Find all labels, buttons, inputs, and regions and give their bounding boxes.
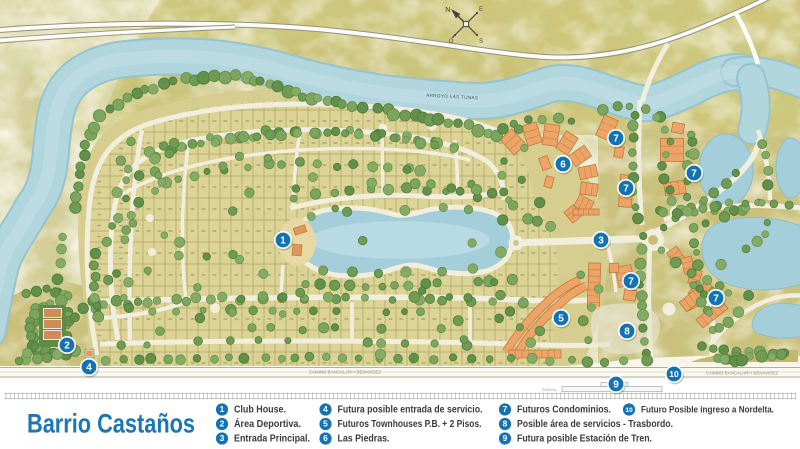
svg-text:3: 3 bbox=[598, 236, 604, 247]
svg-text:7: 7 bbox=[713, 294, 719, 305]
svg-text:Las Piedras.: Las Piedras. bbox=[338, 434, 390, 445]
svg-text:Futura posible entrada de serv: Futura posible entrada de servicio. bbox=[338, 405, 483, 416]
svg-text:Entrada Principal.: Entrada Principal. bbox=[234, 434, 310, 445]
svg-text:8: 8 bbox=[503, 419, 508, 429]
svg-text:S: S bbox=[479, 39, 483, 45]
svg-text:5: 5 bbox=[323, 419, 328, 429]
svg-text:3: 3 bbox=[220, 433, 225, 443]
svg-text:Futuros Townhouses P.B. + 2 Pi: Futuros Townhouses P.B. + 2 Pisos. bbox=[338, 419, 482, 430]
svg-text:7: 7 bbox=[628, 277, 634, 288]
svg-text:6: 6 bbox=[323, 433, 328, 443]
svg-text:Barrio Castaños: Barrio Castaños bbox=[27, 409, 195, 439]
svg-text:4: 4 bbox=[323, 404, 328, 414]
svg-text:Posible área de servicios - Tr: Posible área de servicios - Trasbordo. bbox=[517, 419, 673, 430]
svg-text:9: 9 bbox=[503, 433, 508, 443]
svg-text:E: E bbox=[479, 7, 483, 13]
svg-text:Futuros Condominios.: Futuros Condominios. bbox=[517, 405, 611, 416]
svg-text:10: 10 bbox=[625, 407, 633, 414]
svg-text:7: 7 bbox=[691, 169, 697, 180]
svg-text:Club House.: Club House. bbox=[234, 405, 286, 416]
svg-text:CAMINO BANCALARI • BENAVIDEZ: CAMINO BANCALARI • BENAVIDEZ bbox=[706, 371, 779, 376]
svg-text:CAMINO BANCALARI • BENAVIDEZ: CAMINO BANCALARI • BENAVIDEZ bbox=[309, 370, 382, 375]
svg-text:7: 7 bbox=[623, 184, 629, 195]
svg-text:1: 1 bbox=[280, 236, 286, 247]
svg-text:8: 8 bbox=[624, 327, 630, 338]
svg-text:5: 5 bbox=[558, 314, 564, 325]
svg-text:Futura posible Estación de Tre: Futura posible Estación de Tren. bbox=[517, 434, 652, 445]
svg-text:1: 1 bbox=[220, 404, 225, 414]
svg-text:7: 7 bbox=[503, 404, 508, 414]
svg-text:O: O bbox=[449, 39, 454, 45]
svg-text:Área Deportiva.: Área Deportiva. bbox=[234, 417, 301, 430]
svg-text:FMDGa: FMDGa bbox=[542, 387, 557, 392]
svg-text:10: 10 bbox=[669, 369, 679, 379]
svg-text:6: 6 bbox=[560, 160, 566, 171]
svg-text:Futuro Posible ingreso a Norde: Futuro Posible ingreso a Nordelta. bbox=[641, 405, 774, 415]
svg-text:2: 2 bbox=[220, 419, 225, 429]
svg-text:2: 2 bbox=[64, 341, 70, 352]
svg-text:7: 7 bbox=[613, 134, 619, 145]
svg-text:4: 4 bbox=[86, 363, 92, 374]
svg-text:9: 9 bbox=[613, 380, 619, 391]
svg-text:N: N bbox=[445, 5, 450, 14]
